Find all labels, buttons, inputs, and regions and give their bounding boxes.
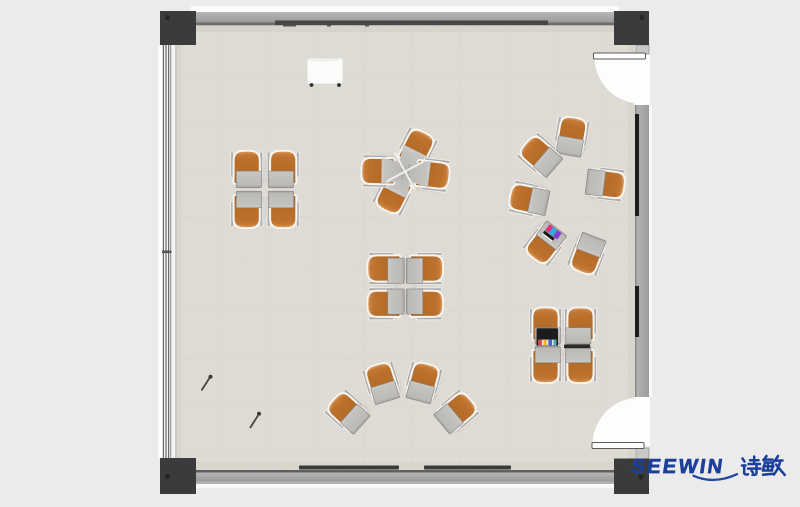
svg-text:SEEWIN: SEEWIN bbox=[630, 456, 726, 478]
